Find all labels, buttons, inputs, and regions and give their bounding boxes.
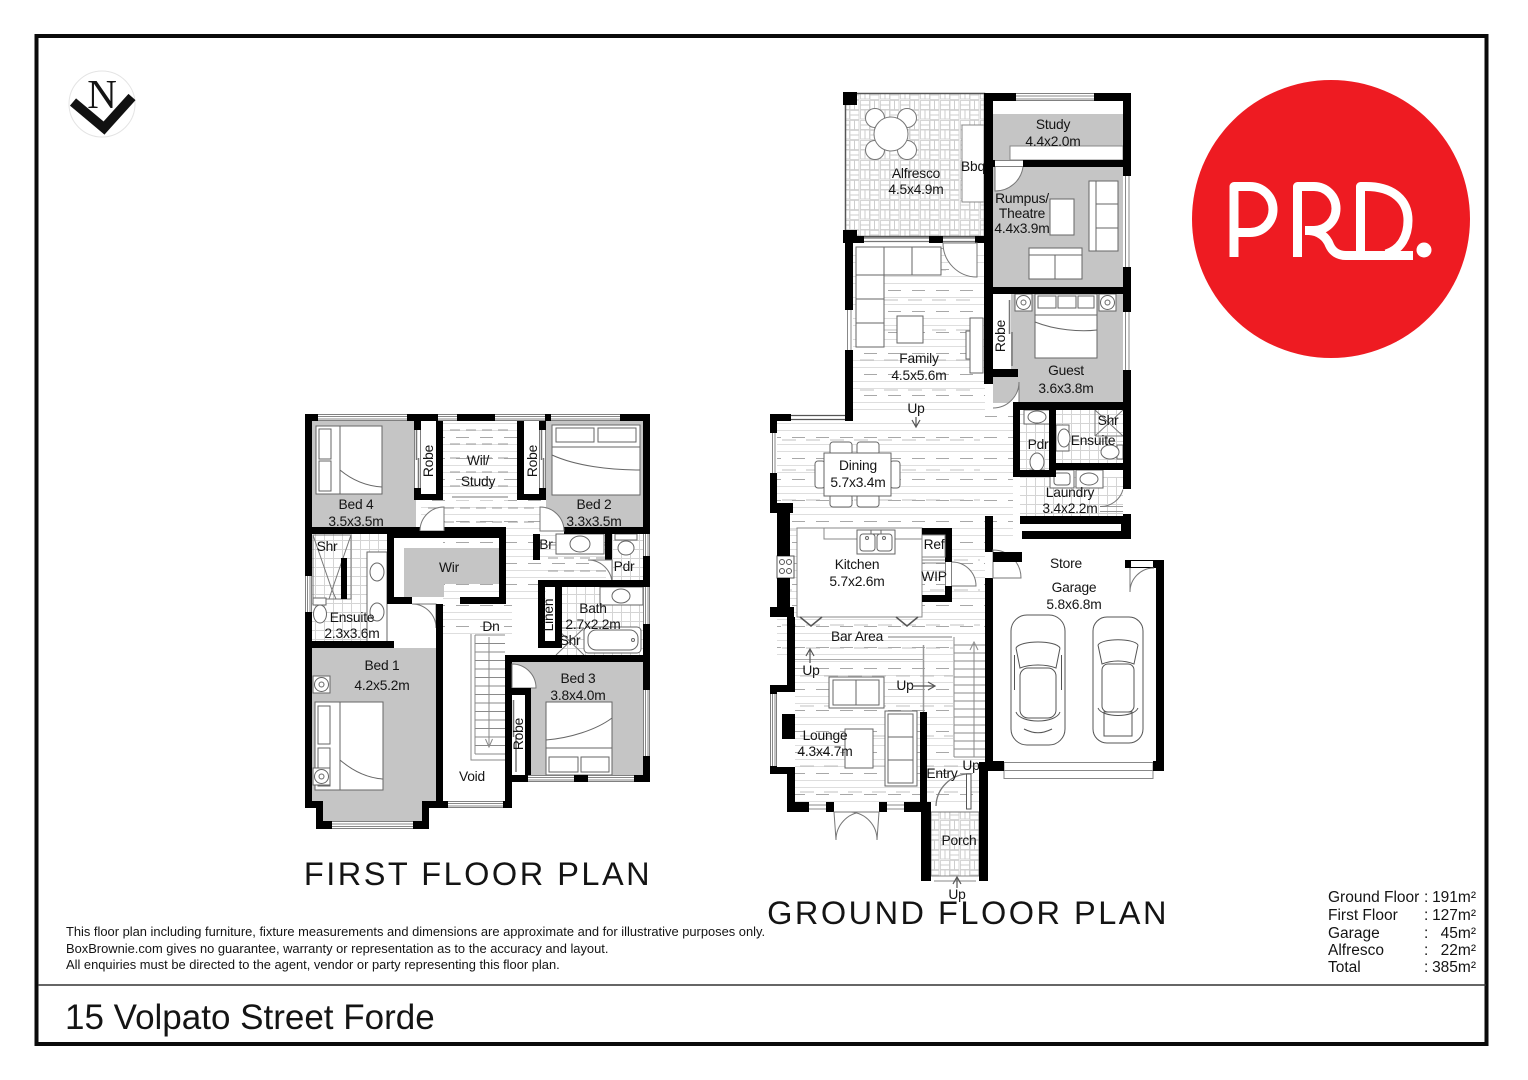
svg-text:GROUND FLOOR PLAN: GROUND FLOOR PLAN [767,895,1169,931]
svg-text:Shr: Shr [560,633,581,648]
svg-text:4.4x3.9m: 4.4x3.9m [994,221,1049,236]
svg-text:5.7x3.4m: 5.7x3.4m [830,475,885,490]
svg-text:2.7x2.2m: 2.7x2.2m [565,617,620,632]
svg-text:Alfresco: Alfresco [1328,942,1384,959]
svg-text:Bbq: Bbq [961,159,985,174]
svg-text:4.4x2.0m: 4.4x2.0m [1025,134,1080,149]
svg-text:First Floor: First Floor [1328,907,1398,924]
svg-text:5.7x2.6m: 5.7x2.6m [829,574,884,589]
svg-text:Rumpus/: Rumpus/ [995,191,1049,206]
svg-text:Alfresco: Alfresco [892,166,941,181]
svg-text:Up: Up [948,887,966,902]
svg-text:Ref: Ref [924,537,945,552]
svg-text:This floor plan including furn: This floor plan including furniture, fix… [66,924,765,939]
svg-text:Robe: Robe [525,444,540,477]
svg-text:Shr: Shr [1098,413,1119,428]
svg-text:Dining: Dining [839,458,877,473]
svg-text:WIP: WIP [921,569,946,584]
svg-text:3.5x3.5m: 3.5x3.5m [328,514,383,529]
svg-text:Bed 4: Bed 4 [338,497,374,512]
svg-text:4.2x5.2m: 4.2x5.2m [354,678,409,693]
svg-text:Dn: Dn [482,619,499,634]
svg-text:All enquiries must be directed: All enquiries must be directed to the ag… [66,957,560,972]
svg-text:Linen: Linen [541,599,556,632]
svg-text:Theatre: Theatre [999,206,1046,221]
svg-text::: : [1424,889,1428,906]
svg-text:Ensuite: Ensuite [1071,433,1116,448]
svg-text:Kitchen: Kitchen [835,557,880,572]
svg-text:127m²: 127m² [1432,907,1476,924]
svg-text::: : [1424,907,1428,924]
svg-text:2.3x3.6m: 2.3x3.6m [324,626,379,641]
svg-text:Wir: Wir [439,560,460,575]
svg-text:Entry: Entry [926,766,958,781]
svg-text:Study: Study [1036,117,1071,132]
svg-text:FIRST FLOOR PLAN: FIRST FLOOR PLAN [304,856,652,892]
svg-text:3.6x3.8m: 3.6x3.8m [1038,381,1093,396]
svg-text:45m²: 45m² [1441,925,1476,942]
svg-text:Robe: Robe [421,444,436,477]
svg-text:Bath: Bath [579,601,607,616]
svg-text:Bed 2: Bed 2 [576,497,611,512]
svg-text:Ground Floor: Ground Floor [1328,889,1419,906]
svg-text:Up: Up [896,678,914,693]
svg-text:3.3x3.5m: 3.3x3.5m [566,514,621,529]
svg-text::: : [1424,959,1428,976]
svg-text:Void: Void [459,769,485,784]
svg-text:3.4x2.2m: 3.4x2.2m [1042,501,1097,516]
svg-text:5.8x6.8m: 5.8x6.8m [1046,597,1101,612]
svg-text:Robe: Robe [993,319,1008,352]
svg-text:22m²: 22m² [1441,942,1476,959]
svg-text:Shr: Shr [317,539,338,554]
svg-text:BoxBrownie.com gives no guaran: BoxBrownie.com gives no guarantee, warra… [66,941,608,956]
svg-text:Up: Up [802,663,820,678]
svg-text:Porch: Porch [941,833,976,848]
svg-text:Bed 3: Bed 3 [560,671,596,686]
svg-text:15 Volpato Street Forde: 15 Volpato Street Forde [65,998,435,1037]
svg-text:Store: Store [1050,556,1083,571]
svg-text:Br: Br [539,537,553,552]
svg-text:Bar Area: Bar Area [831,629,884,644]
svg-text:Lounge: Lounge [803,728,848,743]
svg-text:Wil/: Wil/ [467,453,490,468]
svg-text:Bed 1: Bed 1 [364,658,399,673]
svg-text:Guest: Guest [1048,363,1084,378]
svg-text:4.3x4.7m: 4.3x4.7m [797,744,852,759]
svg-text:191m²: 191m² [1432,889,1476,906]
svg-text:Robe: Robe [511,717,526,750]
svg-text:Up: Up [962,758,980,773]
svg-text:Up: Up [907,401,925,416]
svg-text:Total: Total [1328,959,1361,976]
svg-text:Garage: Garage [1328,925,1380,942]
svg-text:Family: Family [899,351,939,366]
svg-text:4.5x4.9m: 4.5x4.9m [888,182,943,197]
svg-text:Pdr: Pdr [1028,437,1049,452]
svg-text:Pdr: Pdr [614,559,635,574]
svg-text:N: N [87,71,117,117]
svg-text:4.5x5.6m: 4.5x5.6m [891,368,946,383]
svg-text::: : [1424,942,1428,959]
svg-text:Laundry: Laundry [1046,485,1095,500]
svg-text:Ensuite: Ensuite [330,610,375,625]
svg-text::: : [1424,925,1428,942]
svg-text:Garage: Garage [1052,580,1097,595]
svg-text:Study: Study [461,474,496,489]
svg-text:3.8x4.0m: 3.8x4.0m [550,688,605,703]
svg-text:385m²: 385m² [1432,959,1476,976]
